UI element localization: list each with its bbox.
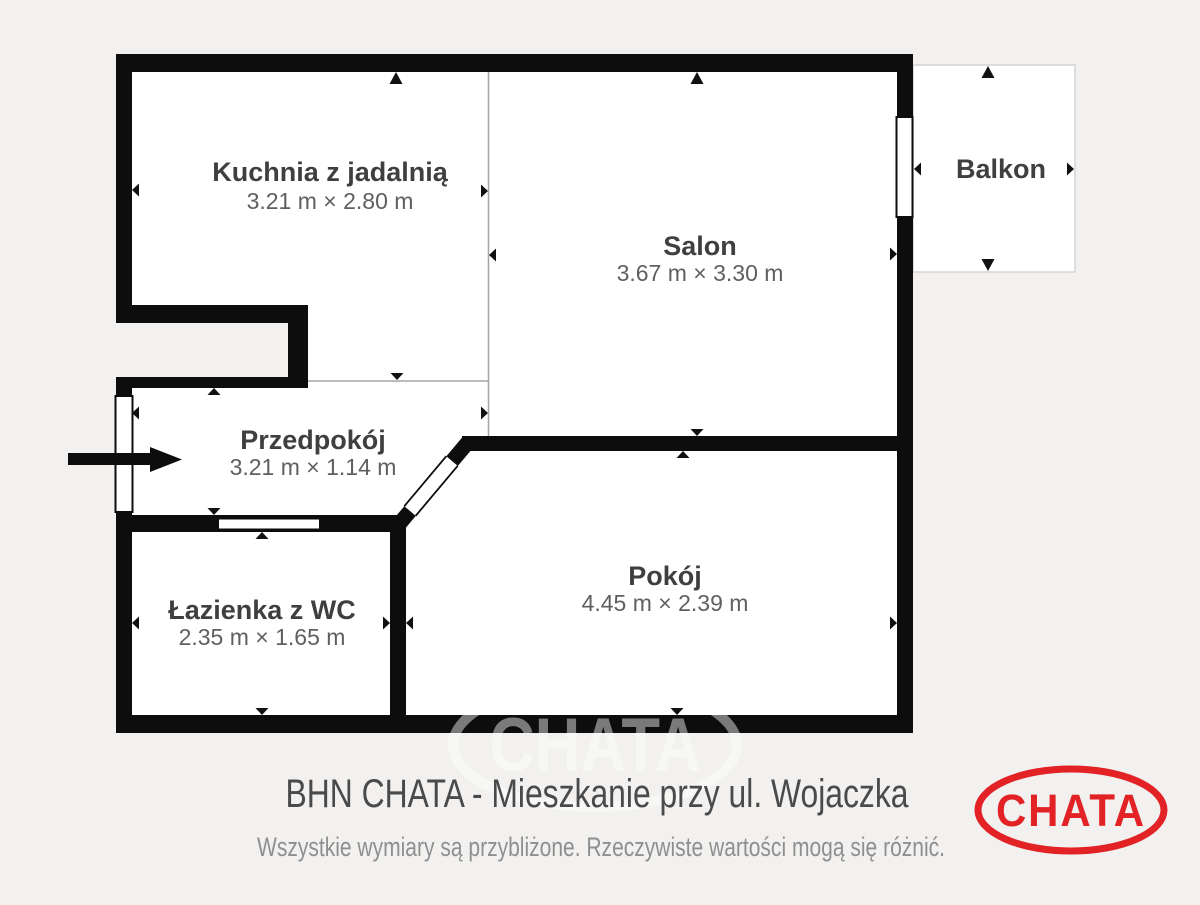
footer-title: BHN CHATA - Mieszkanie przy ul. Wojaczka bbox=[286, 772, 910, 816]
room-dims-lazienka: 2.35 m × 1.65 m bbox=[179, 624, 346, 650]
room-label-przedpokoj: Przedpokój bbox=[240, 425, 386, 455]
room-dims-przedpokoj: 3.21 m × 1.14 m bbox=[230, 454, 397, 480]
room-label-salon: Salon bbox=[663, 231, 737, 261]
brand-logo-text: CHATA bbox=[996, 785, 1146, 836]
room-label-pokoj: Pokój bbox=[628, 561, 702, 591]
bathroom-door bbox=[218, 519, 320, 530]
wall-bathroom-right bbox=[390, 515, 406, 733]
floor-plan-page: Kuchnia z jadalnią 3.21 m × 2.80 m Salon… bbox=[0, 0, 1200, 900]
wall-hallway-top bbox=[116, 377, 308, 388]
room-label-lazienka: Łazienka z WC bbox=[168, 595, 356, 625]
room-label-kuchnia: Kuchnia z jadalnią bbox=[212, 157, 449, 187]
floor-plan-canvas: Kuchnia z jadalnią 3.21 m × 2.80 m Salon… bbox=[0, 0, 1200, 900]
room-dims-pokoj: 4.45 m × 2.39 m bbox=[582, 590, 749, 616]
room-dims-salon: 3.67 m × 3.30 m bbox=[617, 260, 784, 286]
wall-salon-pokoj bbox=[462, 436, 897, 451]
footer-disclaimer: Wszystkie wymiary są przybliżone. Rzeczy… bbox=[257, 832, 945, 862]
room-dims-kuchnia: 3.21 m × 2.80 m bbox=[247, 188, 414, 214]
wall-exterior-top bbox=[116, 54, 913, 72]
wall-notch-stub bbox=[288, 305, 308, 388]
wall-exterior-left-upper bbox=[116, 54, 132, 323]
room-label-balkon: Balkon bbox=[956, 154, 1046, 184]
exterior-notch bbox=[106, 323, 290, 377]
wall-kitchen-bottom bbox=[116, 305, 308, 323]
window-salon-balcony bbox=[897, 117, 913, 217]
